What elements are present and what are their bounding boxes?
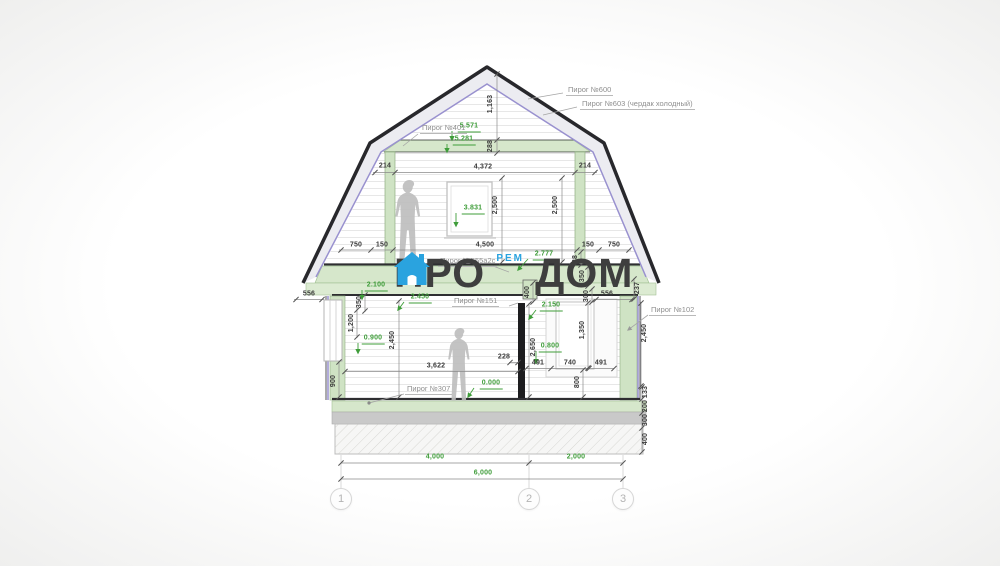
dimension-label: 214 xyxy=(379,163,391,171)
level-mark-label: 0.000 xyxy=(480,380,503,390)
dimension-label: 750 xyxy=(350,242,362,250)
dimension-label: 2,500 xyxy=(552,196,560,215)
level-mark-label: 5.281 xyxy=(453,136,476,146)
axis-bubble: 2 xyxy=(518,488,540,510)
dimension-label: 491 xyxy=(532,360,544,368)
level-mark-label: 0.800 xyxy=(539,343,562,353)
level-mark-label: 3.831 xyxy=(462,205,485,215)
dimension-label: 150 xyxy=(376,242,388,250)
axis-bubble: 1 xyxy=(330,488,352,510)
callout-label: Пирог №307 xyxy=(405,384,452,395)
dimension-label: 400 xyxy=(642,433,650,445)
callout-label: Пирог №151 xyxy=(452,296,499,307)
dimension-label: 2,450 xyxy=(641,324,649,343)
watermark-icon-wrap: РЕМ xyxy=(491,252,529,264)
dimension-label: 6,000 xyxy=(474,470,493,478)
callout-label: Пирог №401 xyxy=(420,123,467,134)
callout-label: Пирог №603 (чердак холодный) xyxy=(580,99,695,110)
level-mark-label: 0.900 xyxy=(362,335,385,345)
dimension-label: 300 xyxy=(642,414,650,426)
dimension-label: 200 xyxy=(642,400,650,412)
dimension-label: 2,500 xyxy=(492,196,500,215)
dimension-label: 228 xyxy=(498,354,510,362)
dimension-label: 1,200 xyxy=(348,314,356,333)
architectural-section-canvas: 5.5715.2813.8312.7772.1002.4502.1500.900… xyxy=(0,0,1000,566)
dimension-label: 4,000 xyxy=(426,454,445,462)
dimension-label: 237 xyxy=(634,282,642,294)
level-mark-label: 2.100 xyxy=(365,282,388,292)
dimension-label: 3,622 xyxy=(427,363,446,371)
watermark: ПРО РЕМ ДОМ xyxy=(394,252,633,294)
dimension-label: 2,000 xyxy=(567,454,586,462)
dimension-label: 214 xyxy=(579,163,591,171)
dimension-label: 2,450 xyxy=(389,331,397,350)
dimension-label: 4,372 xyxy=(474,164,493,172)
watermark-sub-label: РЕМ xyxy=(496,253,524,264)
dimension-label: 750 xyxy=(608,242,620,250)
callout-label: Пирог №600 xyxy=(566,85,613,96)
dimension-label: 2,650 xyxy=(530,338,538,357)
house-icon xyxy=(394,252,430,285)
level-mark-label: 2.150 xyxy=(540,302,563,312)
dimension-label: 288 xyxy=(487,140,495,152)
dimension-label: 133 xyxy=(642,386,650,398)
dimension-label: 556 xyxy=(303,291,315,299)
dimension-label: 1,350 xyxy=(579,321,587,340)
dimension-label: 350 xyxy=(356,296,364,308)
dimension-label: 150 xyxy=(582,242,594,250)
dimension-label: 900 xyxy=(330,375,338,387)
axis-bubble: 3 xyxy=(612,488,634,510)
dimension-label: 491 xyxy=(595,360,607,368)
callout-label: Пирог №102 xyxy=(649,305,696,316)
dimension-label: 1,163 xyxy=(487,95,495,114)
dimension-label: 740 xyxy=(564,360,576,368)
dimension-label: 4,500 xyxy=(476,242,495,250)
watermark-word-right: ДОМ xyxy=(535,252,633,294)
dimension-label: 800 xyxy=(574,376,582,388)
